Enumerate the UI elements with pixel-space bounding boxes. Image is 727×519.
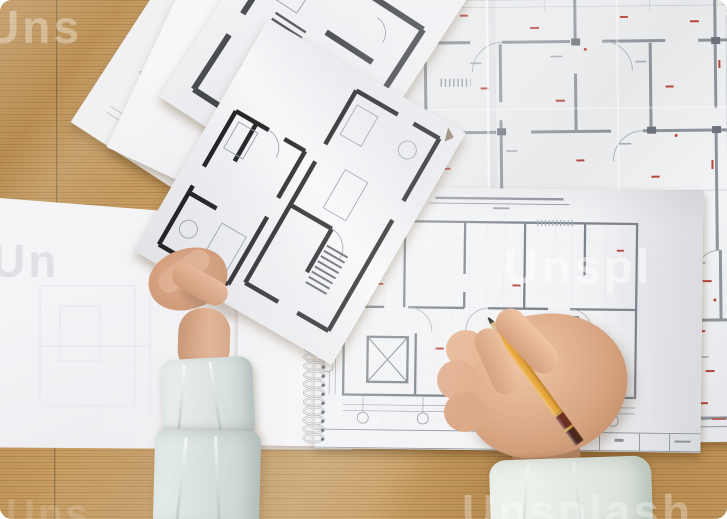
left-sleeve: [153, 429, 262, 519]
sleeve-fold: [175, 437, 188, 519]
desk-photo: Uns Unspl Unsplash Uns Un: [0, 0, 727, 519]
sleeve-fold: [572, 462, 583, 519]
corner-mark: [441, 127, 457, 144]
right-sleeve: [489, 455, 654, 519]
sleeve-fold: [177, 365, 186, 433]
sleeve-fold: [214, 436, 221, 519]
sleeve-fold: [208, 362, 222, 434]
knuckle: [444, 392, 486, 432]
sleeve-fold: [522, 466, 529, 519]
plank-seam: [54, 446, 57, 519]
